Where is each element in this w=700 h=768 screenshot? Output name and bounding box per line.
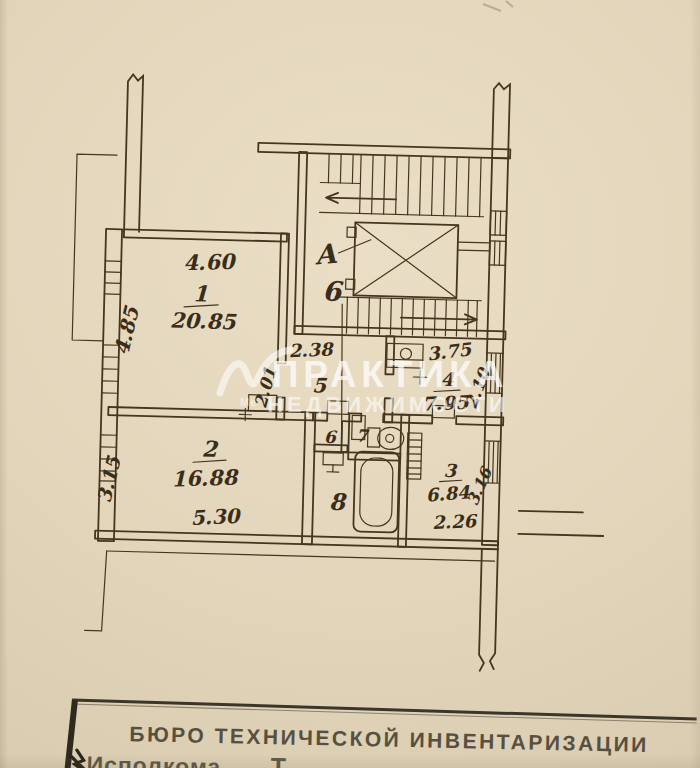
stamp-title: БЮРО ТЕХНИЧЕСКОЙ ИНВЕНТАРИЗАЦИИ	[129, 722, 649, 756]
stairs-up-arrow-icon	[326, 193, 396, 205]
stairwell-number-label: 6	[322, 276, 345, 308]
corridor-lines-right	[518, 511, 604, 536]
room-2-width-label: 5.30	[190, 504, 242, 530]
watermark-line1: ПРАКТИКА	[272, 354, 509, 395]
watermark-line2: НЕДВИЖИМОСТИ	[267, 392, 509, 417]
room-3-number-label: 3	[443, 460, 458, 481]
stairwell-letter-label: А	[313, 238, 338, 271]
room-2-height-label: 3.15	[93, 453, 126, 505]
wall-room1-top	[124, 229, 287, 241]
wall-stub-right	[492, 83, 510, 158]
vent-right-1	[490, 211, 507, 235]
wall-bottom-outer-line	[107, 551, 495, 561]
wall-bottom-exterior	[95, 531, 498, 550]
scanned-floorplan-page: 4.60 1 20.85 4.85 2.38 5 2.01 3.75 4 7.9…	[0, 0, 700, 768]
stamp-subtitle-right: Т	[270, 752, 286, 768]
watermark-logo-caption: Ме	[240, 396, 257, 408]
wall-stair-bottom	[294, 326, 505, 340]
vent-right-2	[489, 241, 506, 265]
balcony-outline	[72, 154, 117, 341]
handwritten-mark	[70, 750, 86, 768]
elevator-icon	[345, 222, 458, 298]
room-1-area-label: 20.85	[170, 308, 238, 335]
wall-stair-top	[258, 143, 510, 159]
floorplan-canvas: 4.60 1 20.85 4.85 2.38 5 2.01 3.75 4 7.9…	[0, 0, 700, 768]
stamp-subtitle: Исполкома	[86, 751, 221, 768]
wall-closet6-right	[341, 421, 349, 452]
wall-room2-right	[302, 412, 315, 544]
room-1-number-label: 1	[192, 280, 208, 306]
wall-stub-left	[124, 74, 143, 231]
bathtub-icon	[353, 451, 399, 532]
stamp-border-top-echo	[72, 704, 697, 723]
wall-below-room3	[479, 549, 498, 671]
toilet-icon	[367, 427, 404, 450]
landing-divider	[458, 242, 490, 251]
pencil-mark	[483, 1, 513, 11]
window-left-1	[104, 261, 121, 294]
wall-hall-bottom-d	[456, 416, 503, 425]
room-2-area-label: 16.88	[171, 465, 240, 492]
stairs-upper-base	[320, 182, 485, 216]
room-3-width-label: 2.26	[432, 510, 479, 533]
wall-bottom-left-return	[85, 550, 107, 630]
sink-icon	[323, 453, 343, 473]
closet-6-number-label: 6	[324, 427, 339, 447]
wall-room1-right-upper	[278, 233, 289, 363]
bath-8-number-label: 8	[329, 488, 348, 515]
stairs-upper-treads-icon	[328, 154, 481, 217]
room-1-height-label: 4.85	[109, 303, 144, 357]
stamp-border-top	[72, 700, 697, 719]
room-1-width-label: 4.60	[183, 249, 237, 275]
bti-stamp: БЮРО ТЕХНИЧЕСКОЙ ИНВЕНТАРИЗАЦИИ Исполком…	[67, 700, 696, 768]
room-2-number-label: 2	[201, 435, 219, 461]
wall-stair-left	[294, 152, 307, 334]
